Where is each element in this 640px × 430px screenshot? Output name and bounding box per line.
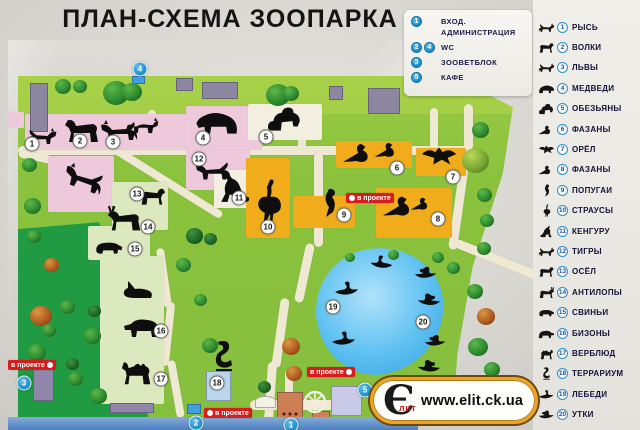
map-marker-9: 9 — [337, 208, 352, 223]
map-marker-11: 11 — [232, 191, 247, 206]
bird-icon — [537, 122, 555, 136]
sidebar-item-13: 13ОСЁЛ — [537, 262, 640, 282]
animal-legend-sidebar: 1РЫСЬ2ВОЛКИ3ЛЬВЫ4МЕДВЕДИ5ОБЕЗЬЯНЫ6ФАЗАНЫ… — [533, 0, 640, 430]
sidebar-item-10: 10СТРАУСЫ — [537, 201, 640, 221]
legend-item-1: 1ВХОД.АДМИНИСТРАЦИЯ — [411, 16, 526, 39]
duck-icon — [537, 408, 555, 422]
bear-icon — [537, 81, 555, 95]
sidebar-number-badge: 8 — [557, 164, 568, 175]
facility-marker-4: 4 — [133, 62, 148, 77]
feline-icon — [537, 61, 555, 75]
map-marker-16: 16 — [154, 324, 169, 339]
bison-icon — [537, 326, 555, 340]
legend-item-label: ВХОД.АДМИНИСТРАЦИЯ — [441, 16, 516, 39]
sidebar-item-label: КЕНГУРУ — [572, 227, 610, 236]
sidebar-item-label: ЛЕБЕДИ — [572, 390, 607, 399]
sidebar-item-label: УТКИ — [572, 410, 594, 419]
map-marker-5: 5 — [259, 130, 274, 145]
map-marker-20: 20 — [416, 315, 431, 330]
pig-icon — [537, 306, 555, 320]
map-marker-15: 15 — [128, 242, 143, 257]
parrot-icon — [537, 183, 555, 197]
legend-number-badge: 1 — [411, 16, 422, 27]
elit-watermark-logo: Є лит www.elit.ck.ua — [370, 377, 538, 424]
sidebar-item-7: 7ОРЁЛ — [537, 139, 640, 159]
sidebar-number-badge: 4 — [557, 83, 568, 94]
sidebar-item-label: ТИГРЫ — [572, 247, 602, 256]
legend-item-label: WC — [441, 42, 454, 54]
map-marker-18: 18 — [210, 376, 225, 391]
sidebar-item-label: ОРЁЛ — [572, 145, 596, 154]
sidebar-number-badge: 15 — [557, 307, 568, 318]
sidebar-item-15: 15СВИНЬИ — [537, 302, 640, 322]
legend-item-label: ЗООВЕТБЛОК — [441, 57, 497, 69]
legend-item-3: 3ЗООВЕТБЛОК — [411, 57, 526, 69]
legend-number-badge: 4 — [424, 42, 435, 53]
sidebar-item-label: РЫСЬ — [572, 23, 598, 32]
legend-item-numbers: 1 — [411, 16, 441, 27]
sidebar-item-label: БИЗОНЫ — [572, 329, 610, 338]
sidebar-item-label: АНТИЛОПЫ — [572, 288, 622, 297]
sidebar-item-18: 18ТЕРРАРИУМ — [537, 364, 640, 384]
sidebar-number-badge: 9 — [557, 185, 568, 196]
legend-label-line: WC — [441, 43, 454, 54]
map-marker-17: 17 — [154, 372, 169, 387]
markers-layer: 123456789101112131415161718192012345 — [8, 40, 535, 430]
sidebar-number-badge: 14 — [557, 287, 568, 298]
sidebar-number-badge: 12 — [557, 246, 568, 257]
sidebar-item-label: МЕДВЕДИ — [572, 84, 614, 93]
elit-logo-subtext: лит — [399, 403, 416, 413]
map-marker-12: 12 — [192, 152, 207, 167]
legend-item-numbers: 3 — [411, 57, 441, 68]
map-marker-6: 6 — [390, 161, 405, 176]
sidebar-item-label: ТЕРРАРИУМ — [572, 369, 623, 378]
sidebar-number-badge: 5 — [557, 103, 568, 114]
legend-item-2-4: 24WC — [411, 42, 526, 54]
sidebar-item-17: 17ВЕРБЛЮД — [537, 343, 640, 363]
legend-label-line: АДМИНИСТРАЦИЯ — [441, 28, 516, 39]
antelope-icon — [537, 285, 555, 299]
map-marker-14: 14 — [141, 220, 156, 235]
sidebar-item-20: 20УТКИ — [537, 404, 640, 424]
sidebar-item-label: ПОПУГАИ — [572, 186, 612, 195]
sidebar-item-label: ОСЁЛ — [572, 267, 596, 276]
sidebar-item-label: ВОЛКИ — [572, 43, 601, 52]
feline-icon — [537, 20, 555, 34]
sidebar-item-label: ФАЗАНЫ — [572, 125, 611, 134]
ostrich-icon — [537, 204, 555, 218]
sidebar-number-badge: 19 — [557, 389, 568, 400]
sidebar-number-badge: 16 — [557, 328, 568, 339]
sidebar-number-badge: 11 — [557, 226, 568, 237]
sidebar-number-badge: 17 — [557, 348, 568, 359]
legend-number-badge: 2 — [411, 42, 422, 53]
zoo-map-sign-photo: ПЛАН-СХЕМА ЗООПАРКА в проектев проектев … — [0, 0, 640, 430]
camel-icon — [537, 346, 555, 360]
sidebar-item-3: 3ЛЬВЫ — [537, 58, 640, 78]
legend-item-numbers: 24 — [411, 42, 441, 53]
elit-website-url: www.elit.ck.ua — [421, 393, 523, 409]
sidebar-item-1: 1РЫСЬ — [537, 17, 640, 37]
elit-logo-letter: Є — [383, 377, 415, 424]
sidebar-number-badge: 13 — [557, 266, 568, 277]
zoo-map: в проектев проектев проектев проекте 123… — [8, 40, 535, 430]
sidebar-number-badge: 7 — [557, 144, 568, 155]
sidebar-item-14: 14АНТИЛОПЫ — [537, 282, 640, 302]
map-marker-19: 19 — [326, 300, 341, 315]
eagle-icon — [537, 143, 555, 157]
map-marker-8: 8 — [431, 212, 446, 227]
sidebar-item-19: 19ЛЕБЕДИ — [537, 384, 640, 404]
map-marker-13: 13 — [130, 187, 145, 202]
sidebar-item-12: 12ТИГРЫ — [537, 241, 640, 261]
sidebar-number-badge: 20 — [557, 409, 568, 420]
sidebar-number-badge: 10 — [557, 205, 568, 216]
legend-label-line: КАФЕ — [441, 73, 464, 84]
sidebar-item-5: 5ОБЕЗЬЯНЫ — [537, 99, 640, 119]
sidebar-number-badge: 3 — [557, 62, 568, 73]
facility-marker-1: 1 — [284, 418, 299, 430]
swan-icon — [537, 387, 555, 401]
sidebar-item-label: ЛЬВЫ — [572, 63, 598, 72]
sidebar-item-11: 11КЕНГУРУ — [537, 221, 640, 241]
bird-icon — [537, 163, 555, 177]
facility-marker-3: 3 — [17, 376, 32, 391]
map-marker-1: 1 — [25, 137, 40, 152]
sidebar-item-label: СВИНЬИ — [572, 308, 608, 317]
map-marker-3: 3 — [106, 135, 121, 150]
elit-logo-mark: Є лит — [383, 381, 421, 421]
sidebar-item-4: 4МЕДВЕДИ — [537, 78, 640, 98]
kangaroo-icon — [537, 224, 555, 238]
sidebar-item-label: ОБЕЗЬЯНЫ — [572, 104, 622, 113]
sidebar-item-16: 16БИЗОНЫ — [537, 323, 640, 343]
legend-number-badge: 5 — [411, 72, 422, 83]
quad-icon — [537, 265, 555, 279]
sidebar-number-badge: 6 — [557, 124, 568, 135]
legend-item-5: 5КАФЕ — [411, 72, 526, 84]
monkey-icon — [537, 102, 555, 116]
legend-item-numbers: 5 — [411, 72, 441, 83]
legend-label-line: ВХОД. — [441, 17, 516, 28]
sidebar-item-9: 9ПОПУГАИ — [537, 180, 640, 200]
facilities-legend-box: 1ВХОД.АДМИНИСТРАЦИЯ24WC3ЗООВЕТБЛОК5КАФЕ — [404, 10, 532, 96]
sidebar-item-label: ФАЗАНЫ — [572, 165, 611, 174]
sidebar-item-2: 2ВОЛКИ — [537, 37, 640, 57]
sidebar-item-label: ВЕРБЛЮД — [572, 349, 615, 358]
page-title: ПЛАН-СХЕМА ЗООПАРКА — [50, 5, 410, 34]
map-marker-10: 10 — [261, 220, 276, 235]
quad-icon — [537, 41, 555, 55]
sidebar-number-badge: 18 — [557, 368, 568, 379]
map-marker-2: 2 — [73, 134, 88, 149]
sidebar-item-6: 6ФАЗАНЫ — [537, 119, 640, 139]
sidebar-number-badge: 1 — [557, 22, 568, 33]
map-marker-7: 7 — [446, 170, 461, 185]
feline-icon — [537, 244, 555, 258]
legend-label-line: ЗООВЕТБЛОК — [441, 58, 497, 69]
legend-item-label: КАФЕ — [441, 72, 464, 84]
facility-marker-2: 2 — [189, 416, 204, 430]
sidebar-number-badge: 2 — [557, 42, 568, 53]
snake-icon — [537, 367, 555, 381]
legend-number-badge: 3 — [411, 57, 422, 68]
map-marker-4: 4 — [196, 131, 211, 146]
sidebar-item-8: 8ФАЗАНЫ — [537, 160, 640, 180]
sidebar-item-label: СТРАУСЫ — [572, 206, 613, 215]
